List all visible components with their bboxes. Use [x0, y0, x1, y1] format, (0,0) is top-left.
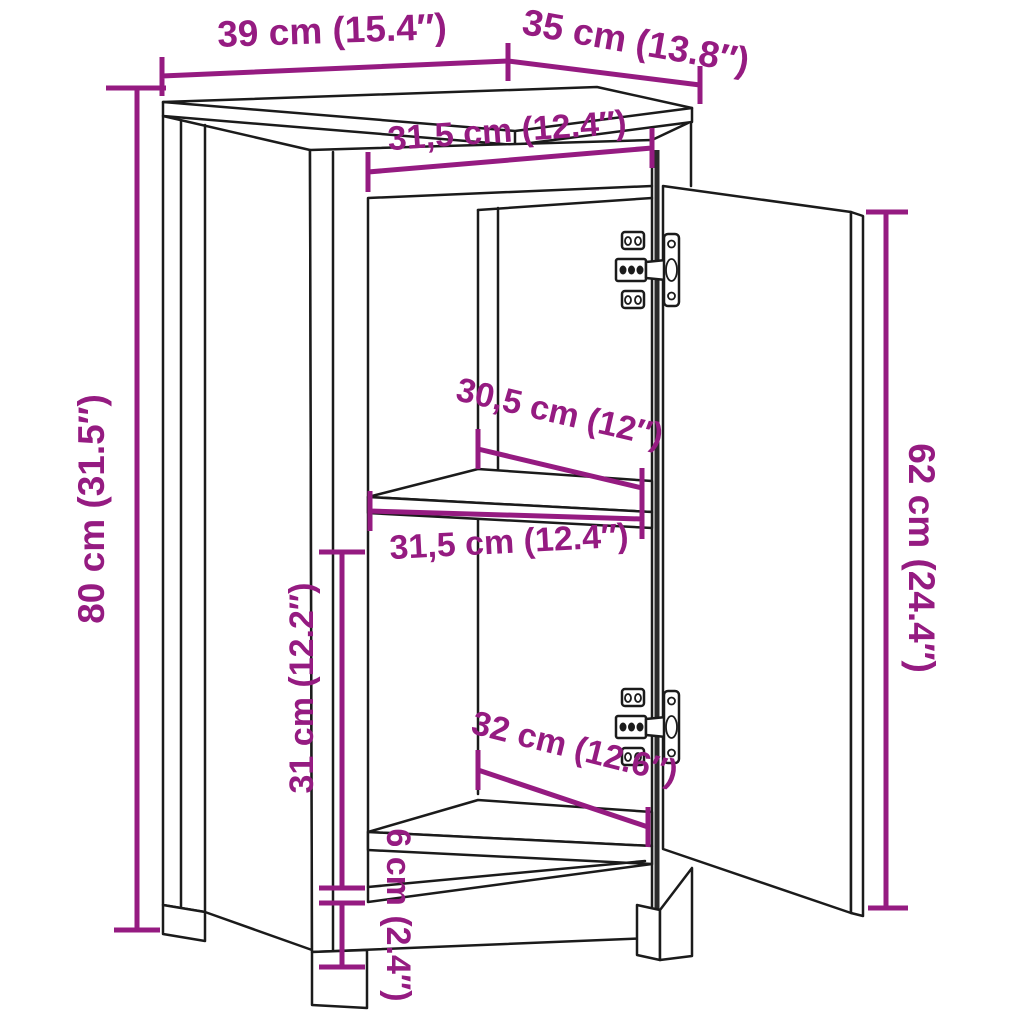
dim-label-door-height: 62 cm (24.4″) [901, 443, 942, 673]
dimension-diagram: 39 cm (15.4″) 35 cm (13.8″) 31,5 cm (12.… [0, 0, 1024, 1024]
dimension-door-height: 62 cm (24.4″) [866, 212, 942, 908]
dim-label-top-width: 39 cm (15.4″) [217, 6, 448, 55]
dimension-top-width: 39 cm (15.4″) [162, 6, 508, 96]
cabinet-door [663, 186, 851, 913]
cabinet-door-edge-thickness [851, 212, 863, 916]
dim-label-total-height: 80 cm (31.5″) [71, 394, 112, 624]
dim-label-leg-height: 6 cm (2.4″) [379, 828, 417, 1001]
dim-line-total-height [106, 88, 166, 930]
cabinet-diagram-canvas: 39 cm (15.4″) 35 cm (13.8″) 31,5 cm (12.… [0, 0, 1024, 1024]
front-right-leg-side [660, 868, 692, 960]
dim-label-inner-height-lower: 31 cm (12.2″) [283, 583, 321, 794]
cabinet-left-side-panel [163, 116, 312, 950]
dim-line-top-width [162, 43, 508, 96]
front-right-leg-front [637, 905, 660, 960]
dim-label-top-depth: 35 cm (13.8″) [519, 1, 752, 81]
rear-left-leg [163, 905, 205, 941]
dimension-total-height: 80 cm (31.5″) [71, 88, 166, 930]
